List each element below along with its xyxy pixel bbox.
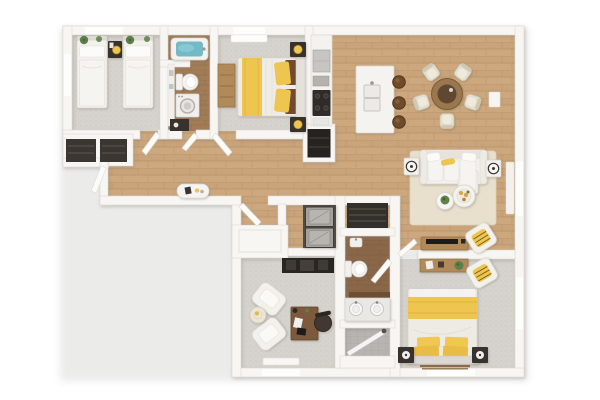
table-decor	[449, 88, 453, 92]
coffee-table-tray	[453, 185, 475, 207]
back-pillow	[427, 152, 441, 162]
toilet	[345, 261, 367, 277]
desk-lamp	[293, 308, 298, 313]
dining-chair	[440, 114, 454, 129]
island-sink	[364, 85, 380, 98]
yellow-lamp	[294, 120, 302, 128]
window-office-bottom	[262, 369, 300, 376]
wall-shower-bottom	[340, 356, 395, 368]
nightstand-right	[472, 347, 488, 363]
cooktop	[313, 90, 331, 116]
dining-table	[432, 79, 463, 110]
side-table-right	[486, 160, 501, 177]
island-faucet	[370, 81, 374, 85]
window-master-bottom	[427, 369, 475, 376]
window-master-right	[516, 277, 523, 329]
washer	[306, 207, 334, 227]
tv-console	[421, 237, 468, 250]
wall-office-bathcol	[335, 196, 345, 368]
wall-top	[63, 26, 524, 35]
island-sink	[364, 99, 380, 112]
nightstand-shared	[108, 41, 122, 58]
nightstand-bottom	[290, 117, 306, 132]
tub-faucet	[202, 47, 205, 50]
seat-cushion	[428, 159, 443, 181]
coffee-table-plant	[437, 193, 454, 210]
floor-plan-image	[0, 0, 600, 400]
shower-head	[382, 329, 387, 334]
pantry-cabinet	[308, 129, 331, 158]
wall-bedroom1-bath1	[160, 26, 168, 139]
vanity-shelf	[349, 292, 390, 298]
office-chair	[315, 310, 332, 331]
bedroom-desk	[420, 259, 468, 272]
headboard	[406, 356, 479, 364]
window-sill	[231, 35, 267, 42]
double-bed	[238, 56, 305, 118]
window-ledge	[506, 162, 514, 214]
laptop	[296, 327, 306, 335]
tv	[426, 239, 458, 244]
window-living-right	[516, 161, 523, 216]
room-hallway	[177, 184, 209, 198]
floor-plan-svg	[0, 0, 600, 400]
console-table	[177, 184, 209, 198]
master-bed	[406, 289, 479, 364]
window-ledge	[263, 358, 299, 365]
pillow	[80, 46, 105, 57]
yellow-lamp	[113, 46, 121, 54]
kitchen-island	[356, 66, 394, 133]
wall-left-lower-wing	[232, 196, 241, 377]
window-bedroom1	[64, 54, 71, 96]
yellow-pillow	[274, 88, 291, 112]
window-bedroom2-top	[233, 27, 265, 34]
yellow-blanket	[408, 297, 477, 319]
washing-machine	[176, 94, 199, 117]
room-laundry	[303, 205, 336, 248]
wall-living-master	[418, 250, 515, 259]
armrest	[420, 150, 427, 184]
dresser	[218, 64, 235, 107]
counter-appliance	[313, 76, 329, 86]
wall-closet2-bottom	[340, 228, 395, 236]
book	[110, 43, 114, 49]
twin-bed-left	[77, 36, 107, 108]
wall-bath1-bedroom2	[210, 26, 218, 139]
wall-hall-bottom	[100, 196, 241, 205]
counter-sink	[313, 118, 329, 125]
duvet	[126, 60, 151, 106]
toilet	[176, 74, 198, 90]
plant	[455, 261, 464, 270]
round-side-table	[250, 307, 266, 323]
nightstand-top	[290, 42, 306, 57]
foot-bench	[420, 365, 470, 367]
double-vanity	[345, 298, 390, 321]
headboard	[296, 56, 305, 118]
yellow-lamp	[294, 45, 302, 53]
office-desk	[291, 307, 318, 340]
duvet	[80, 60, 105, 106]
window-bedroom1-top	[85, 27, 123, 34]
twin-bed-right	[123, 36, 153, 108]
bath-cabinet	[170, 119, 189, 131]
room-linen-closet	[347, 203, 388, 228]
wall-bath1-stub	[160, 60, 190, 67]
dryer	[306, 228, 334, 248]
pillow	[126, 46, 151, 57]
side-table-left	[404, 158, 419, 175]
desk-plant	[305, 309, 309, 313]
bathtub	[171, 38, 208, 60]
nightstand-left	[398, 347, 414, 363]
bar-stools	[393, 76, 406, 129]
back-pillow	[462, 152, 477, 161]
yellow-pillow	[274, 61, 291, 85]
wall-thermostat	[489, 92, 500, 107]
